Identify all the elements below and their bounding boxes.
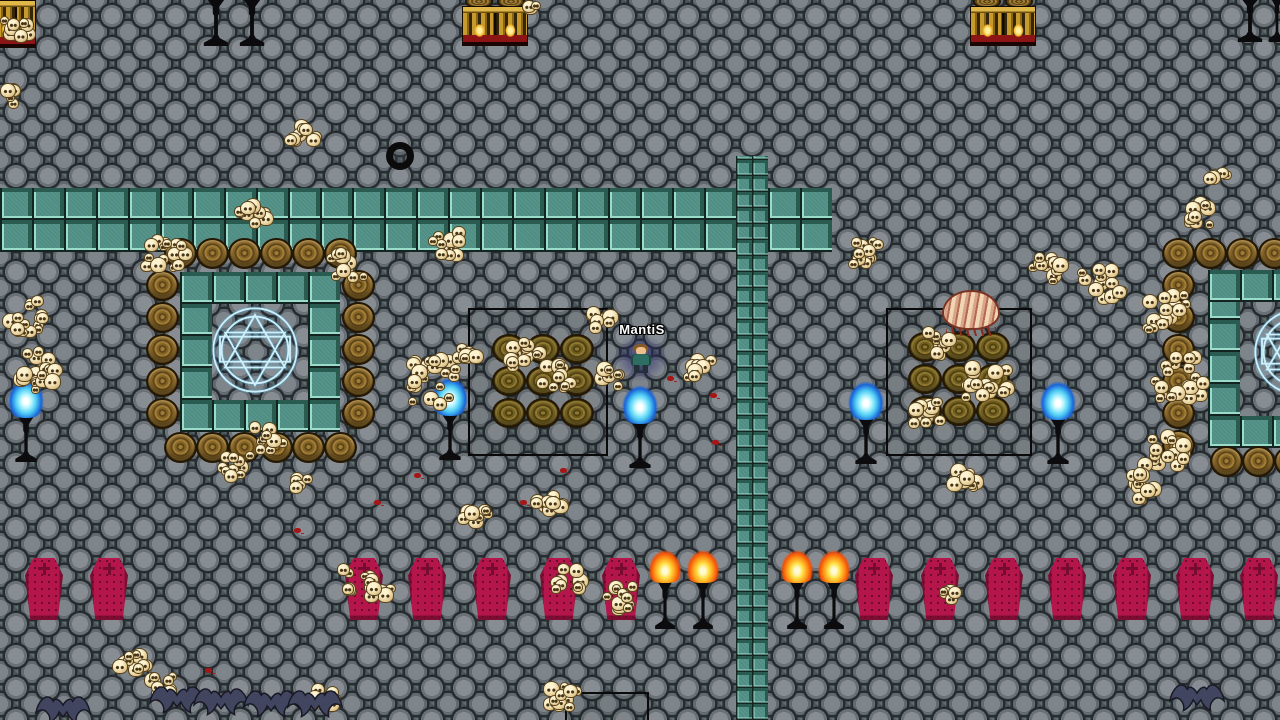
barrel[interactable] [196,238,229,269]
blood-splatter [710,393,717,398]
tiled-path [308,304,340,400]
coffin[interactable] [1048,558,1086,620]
skull-icon [408,397,418,406]
skull-icon [908,402,924,417]
basket[interactable] [526,398,560,428]
skull-icon [536,377,549,389]
skull-icon [1052,257,1069,273]
skull-icon [37,370,47,379]
skull-icon [1205,220,1215,229]
skull-icon [613,381,623,391]
barrel[interactable] [260,238,293,269]
skull-icon [908,417,920,429]
skull-icon [959,470,976,486]
skull-icon [964,360,981,376]
orange-flame-icon [779,545,815,583]
skull-pile[interactable] [1136,286,1194,338]
barrel[interactable] [342,398,375,429]
skull-pile[interactable] [518,0,550,16]
skull-pile[interactable] [960,360,1018,406]
skull-icon [1203,172,1217,185]
skull-pile[interactable] [138,232,196,280]
skull-icon [1092,263,1106,276]
skull-icon [975,388,990,402]
ring-item[interactable] [386,142,414,170]
skull-pile[interactable] [446,332,488,368]
skull-icon [531,1,541,10]
barrel[interactable] [1210,446,1243,477]
skull-pile[interactable] [326,246,372,288]
skull-icon [460,353,471,363]
skull-icon [1166,392,1177,402]
skull-icon [249,217,261,228]
skull-icon [240,201,255,215]
skull-icon [1112,285,1127,299]
magic-circle [205,300,305,400]
blood-splatter [205,668,212,673]
skull-icon [573,582,583,592]
skull-icon [1088,282,1104,297]
bat[interactable] [286,688,344,720]
skull-icon [564,702,575,712]
coffin[interactable] [90,558,128,620]
blue-flame-torch[interactable] [1036,380,1080,464]
skull-icon [551,584,561,593]
skull-icon [930,346,945,360]
basket[interactable] [976,332,1010,362]
skull-icon [560,381,570,391]
barrel[interactable] [1226,238,1259,269]
skull-icon [1179,290,1189,300]
skull-icon [621,592,633,603]
skull-pile[interactable] [286,468,322,498]
skull-icon [1196,376,1210,390]
torch[interactable] [778,545,816,630]
player-legs [634,365,648,373]
skull-icon [1175,437,1192,453]
skull-icon [299,123,312,136]
skull-icon [245,451,255,461]
skull-icon [604,365,613,374]
skull-pile[interactable] [1202,166,1234,194]
skull-icon [1077,268,1087,277]
blue-flame-icon [1039,380,1077,420]
skull-icon [335,247,347,258]
skull-icon [602,592,612,601]
skull-pile[interactable] [1076,258,1134,308]
skull-icon [433,397,447,411]
blood-splatter [374,500,381,505]
skull-pile[interactable] [845,232,891,272]
skull-icon [33,346,45,357]
barrel[interactable] [292,238,325,269]
golden-shrine[interactable] [970,6,1036,46]
skull-icon [144,238,159,252]
skull-pile[interactable] [1122,466,1170,508]
tiled-path [1208,302,1240,416]
skull-icon [359,272,368,281]
skull-icon [481,506,491,515]
skull-pile[interactable] [595,576,641,622]
skull-icon [0,83,16,98]
skull-pile[interactable] [902,396,948,436]
unlit-torch-stand[interactable] [1234,0,1266,42]
skull-icon [19,18,30,28]
skull-icon [518,337,529,348]
blue-flame-torch[interactable] [618,384,662,468]
skull-icon [435,382,445,391]
barrel[interactable] [1162,238,1195,269]
skull-icon [464,505,481,521]
barrel[interactable] [146,302,179,333]
unlit-torch-stand[interactable] [1266,0,1280,42]
skull-icon [31,295,44,307]
skull-icon [1169,351,1183,364]
skull-icon [1183,352,1196,364]
skull-pile[interactable] [1028,248,1074,288]
coffin[interactable] [473,558,511,620]
tiled-path [1208,270,1280,302]
skull-pile[interactable] [212,448,258,486]
skull-icon [176,240,187,251]
skull-icon [931,397,942,408]
tiled-path [736,156,768,720]
skull-icon [428,355,441,368]
barrel[interactable] [1274,446,1280,477]
coffin[interactable] [1176,558,1214,620]
skull-icon [44,373,61,389]
skull-icon [1177,452,1190,464]
skull-icon [1159,303,1172,316]
skull-icon [948,586,962,599]
barrel[interactable] [324,432,357,463]
coffin[interactable] [855,558,893,620]
torch[interactable] [815,545,853,630]
basket[interactable] [560,398,594,428]
skull-icon [569,563,584,578]
skull-pile[interactable] [0,16,42,48]
skull-icon [563,684,579,699]
skull-icon [848,259,859,270]
barrel[interactable] [1258,238,1280,269]
skull-icon [468,349,484,364]
bat[interactable] [34,694,92,720]
skull-icon [961,392,971,402]
skull-pile[interactable] [230,198,276,238]
skull-icon [920,417,932,429]
skull-icon [506,356,519,368]
barrel[interactable] [342,302,375,333]
skull-icon [342,583,354,595]
torch[interactable] [646,545,684,630]
skull-icon [1142,294,1158,309]
skull-pile[interactable] [28,362,70,400]
tiled-path [1208,416,1280,448]
skull-pile[interactable] [550,562,592,598]
orange-flame-icon [816,545,852,583]
skull-icon [555,360,565,369]
skull-icon [144,253,154,262]
blood-splatter [560,468,567,473]
skull-icon [1158,291,1171,304]
skull-icon [851,237,862,248]
skull-pile[interactable] [425,226,471,266]
skull-pile[interactable] [525,490,571,530]
skull-icon [366,581,382,596]
worm-body [942,290,1000,330]
tiled-path [0,188,832,252]
skull-icon [853,248,865,259]
orange-flame-icon [685,545,721,583]
coffin[interactable] [25,558,63,620]
skull-icon [1048,277,1057,286]
skull-icon [548,382,559,392]
barrel[interactable] [146,398,179,429]
skull-pile[interactable] [283,118,325,154]
skull-icon [7,18,20,30]
skull-icon [545,496,560,511]
skull-icon [1162,366,1174,377]
skull-pile[interactable] [1150,350,1212,408]
skull-icon [1200,200,1211,210]
player-character[interactable] [628,344,654,374]
skull-icon [530,497,543,510]
blood-splatter [414,473,421,478]
skull-pile[interactable] [1182,196,1224,232]
skull-icon [22,348,33,359]
skull-icon [10,322,25,336]
skull-icon [289,481,303,494]
skull-icon [1144,325,1153,334]
basket[interactable] [908,364,942,394]
skull-pile[interactable] [533,358,581,400]
skull-icon [172,259,185,272]
skull-icon [428,236,438,246]
skull-pile[interactable] [0,82,26,112]
skull-icon [1154,380,1169,395]
skull-icon [435,248,448,260]
skull-icon [997,386,1010,399]
game-viewport: MantiS [0,0,1280,720]
orange-flame-icon [647,545,683,583]
barrel[interactable] [146,366,179,397]
skull-icon [162,239,171,248]
skull-icon [302,474,313,484]
blue-flame-icon [847,380,885,420]
blood-splatter [667,376,674,381]
barrel[interactable] [342,366,375,397]
coffin[interactable] [1240,558,1278,620]
coffin[interactable] [408,558,446,620]
skull-icon [124,651,134,661]
barrel[interactable] [228,238,261,269]
skull-icon [941,332,957,348]
skull-pile[interactable] [945,460,987,498]
skull-icon [627,581,638,591]
skull-pile[interactable] [542,678,588,718]
skull-icon [228,452,239,463]
skull-icon [1172,303,1187,317]
skull-icon [224,469,239,483]
skull-icon [452,234,467,248]
skull-icon [407,374,422,388]
unlit-torch-stand[interactable] [200,0,232,46]
skull-pile[interactable] [915,326,961,364]
skull-icon [1188,210,1202,223]
bat[interactable] [1168,682,1226,716]
skull-icon [623,603,633,612]
skull-icon [922,326,935,338]
skull-icon [517,354,531,367]
skull-icon [1034,252,1045,262]
blood-splatter [294,528,301,533]
barrel[interactable] [1242,446,1275,477]
skull-icon [1161,450,1175,463]
blue-flame-torch[interactable] [844,380,888,464]
skull-icon [987,364,1004,380]
skull-icon [284,134,297,146]
skull-icon [36,312,49,324]
barrel[interactable] [342,334,375,365]
skull-icon [112,659,127,674]
basket[interactable] [492,398,526,428]
blood-splatter [520,500,527,505]
barrel[interactable] [146,334,179,365]
skull-icon [336,263,352,278]
skull-icon [688,370,701,382]
barrel[interactable] [1194,238,1227,269]
skull-pile[interactable] [682,352,724,390]
skull-icon [1155,393,1165,403]
coffin[interactable] [985,558,1023,620]
unlit-torch-stand[interactable] [236,0,268,46]
skull-pile[interactable] [362,576,398,606]
skull-pile[interactable] [455,502,497,538]
skull-icon [337,563,351,576]
barrel[interactable] [164,432,197,463]
skull-pile[interactable] [0,292,56,344]
magic-circle [1247,302,1280,402]
skull-icon [1140,483,1155,498]
torch[interactable] [684,545,722,630]
blood-splatter [712,440,719,445]
coffin[interactable] [1113,558,1151,620]
skull-icon [249,421,262,433]
player-name-label: MantiS [592,322,692,337]
skull-icon [14,29,28,42]
skull-icon [934,415,946,426]
barrel[interactable] [292,432,325,463]
skull-pile[interactable] [938,582,970,610]
